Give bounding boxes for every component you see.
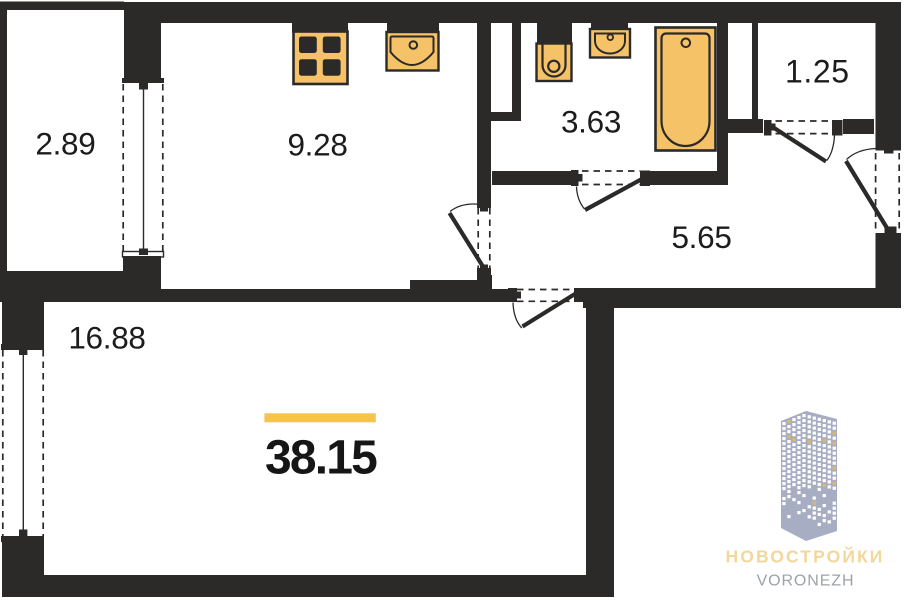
svg-text:38.15: 38.15 xyxy=(265,431,377,484)
svg-text:5.65: 5.65 xyxy=(671,219,731,255)
svg-text:VORONEZH: VORONEZH xyxy=(757,573,855,590)
svg-text:1.25: 1.25 xyxy=(785,53,850,89)
svg-text:3.63: 3.63 xyxy=(561,103,621,139)
svg-text:9.28: 9.28 xyxy=(287,127,347,163)
svg-text:2.89: 2.89 xyxy=(35,126,95,162)
svg-text:НОВОСТРОЙКИ: НОВОСТРОЙКИ xyxy=(726,546,885,567)
svg-text:16.88: 16.88 xyxy=(68,320,145,356)
